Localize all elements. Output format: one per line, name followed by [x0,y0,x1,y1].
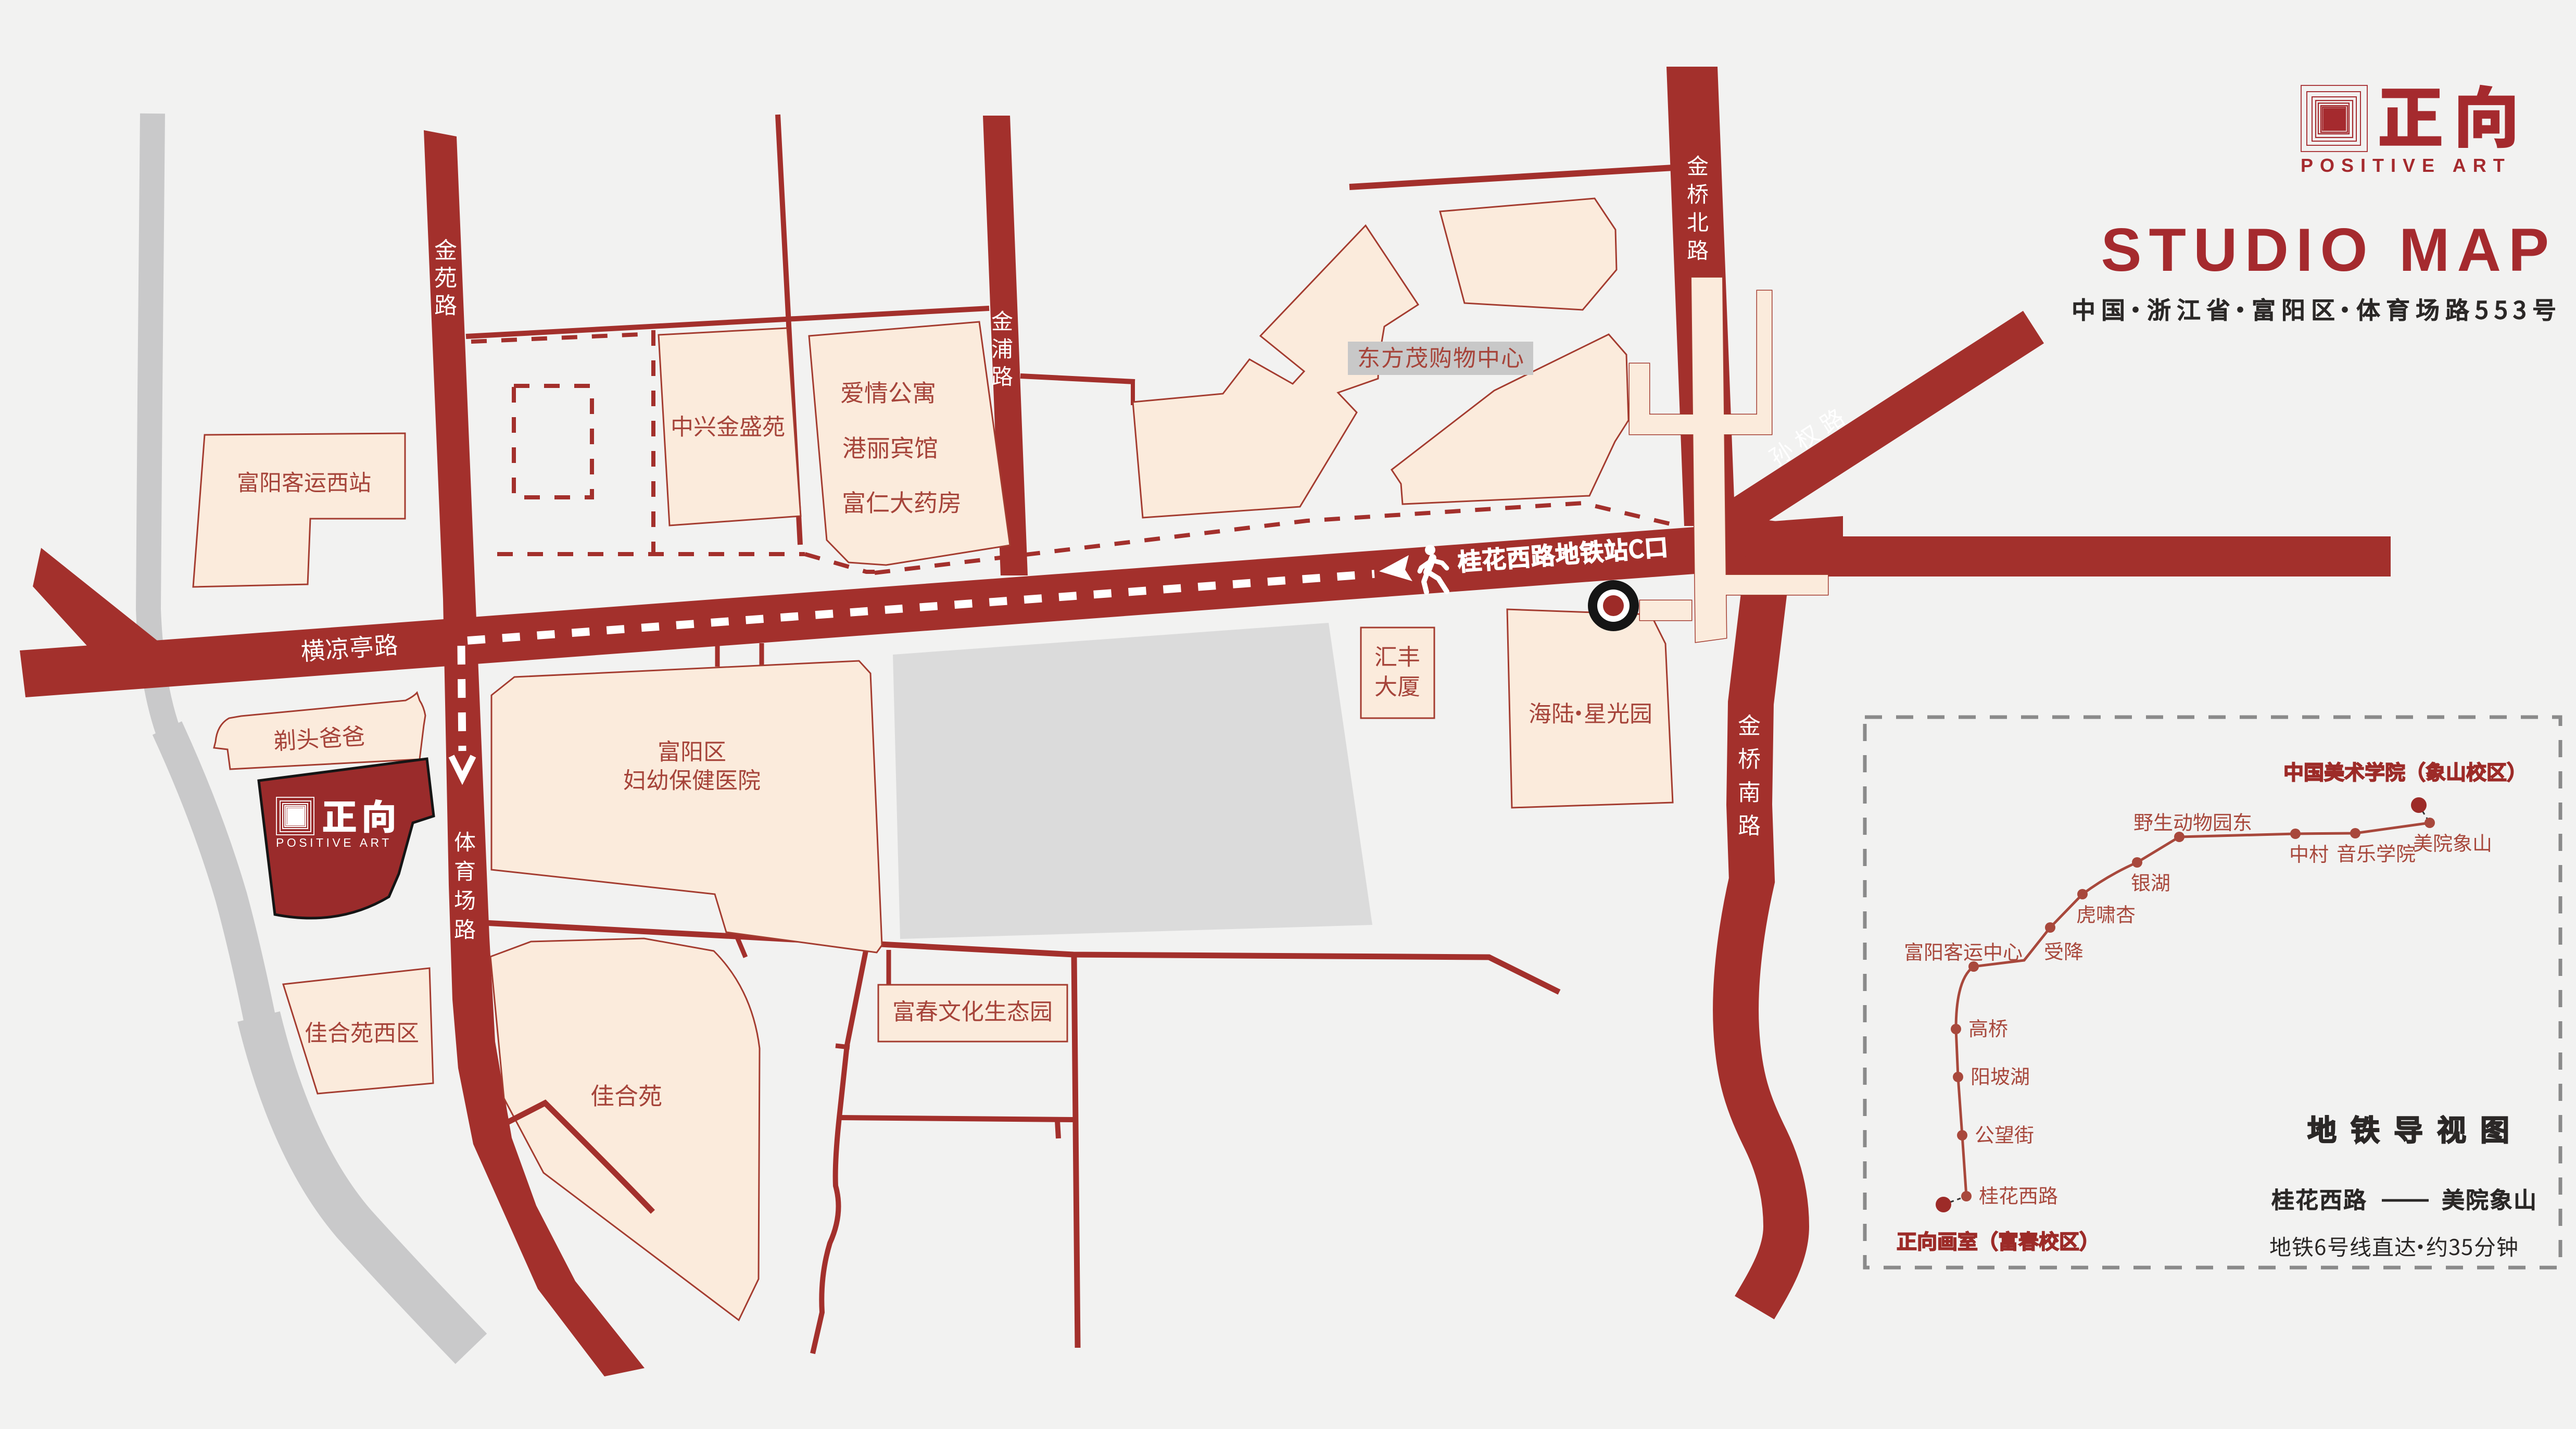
svg-text:STUDIO MAP: STUDIO MAP [2101,216,2556,284]
svg-text:POSITIVE ART: POSITIVE ART [276,836,392,849]
svg-text:POSITIVE ART: POSITIVE ART [2301,155,2511,176]
